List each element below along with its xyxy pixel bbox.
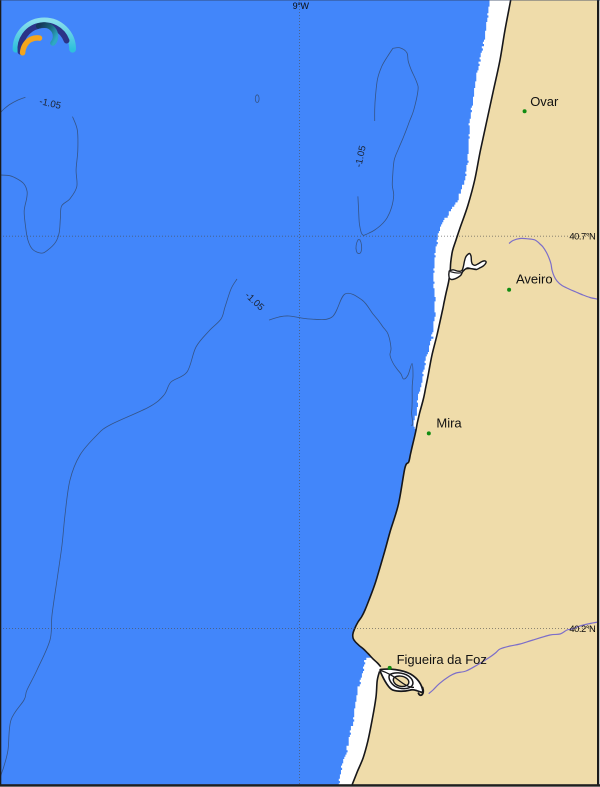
svg-text:Mira: Mira <box>436 415 462 430</box>
svg-text:9°W: 9°W <box>293 1 310 11</box>
svg-text:Ovar: Ovar <box>530 94 559 109</box>
svg-text:Figueira da Foz: Figueira da Foz <box>397 652 487 667</box>
svg-text:40.7°N: 40.7°N <box>569 231 595 242</box>
svg-text:Aveiro: Aveiro <box>516 272 553 287</box>
svg-text:40.2°N: 40.2°N <box>569 623 595 634</box>
